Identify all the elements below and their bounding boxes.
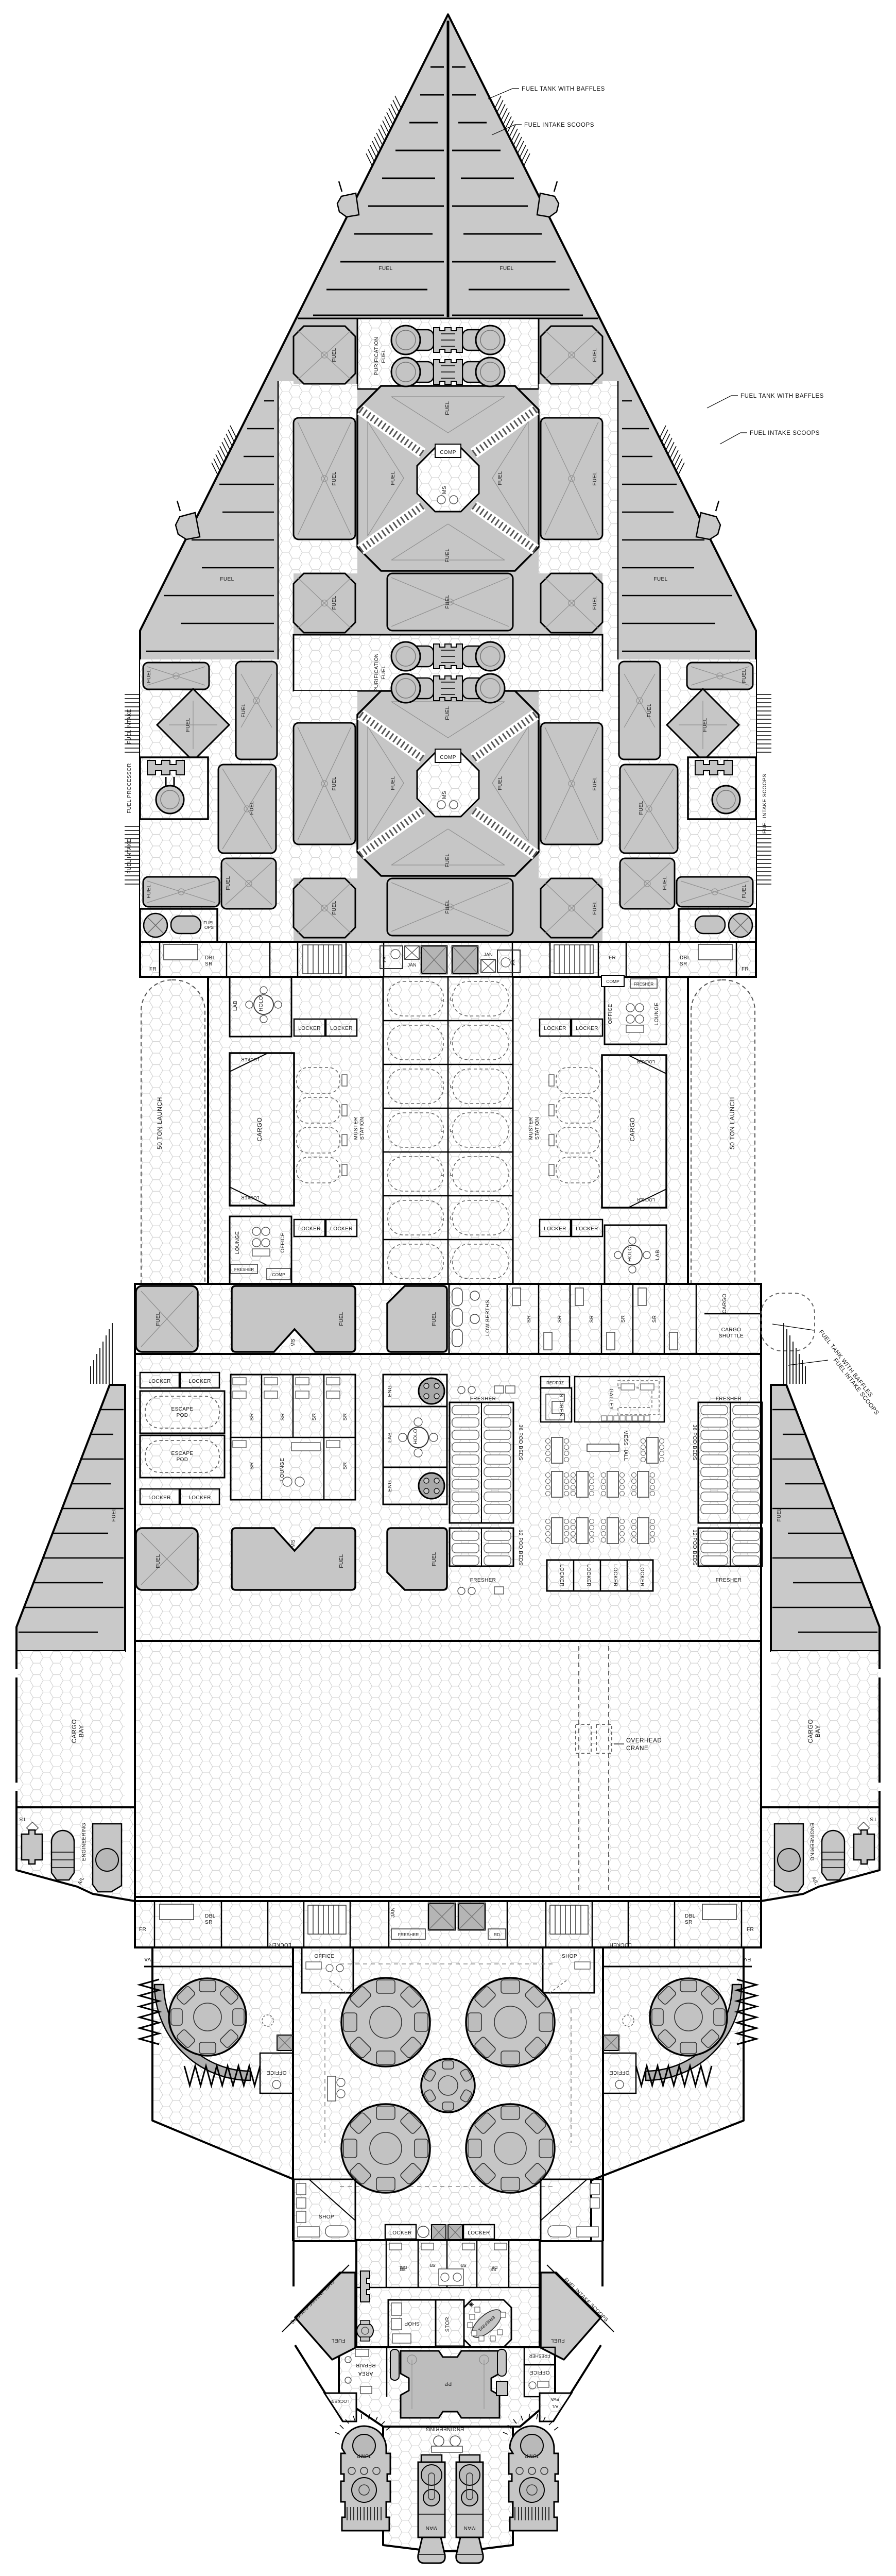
svg-text:FUEL INTAKE SCOOPS: FUEL INTAKE SCOOPS	[524, 122, 594, 128]
svg-text:12 POD BEDS: 12 POD BEDS	[518, 1530, 523, 1566]
svg-text:FUEL: FUEL	[332, 348, 337, 362]
svg-text:POD: POD	[177, 1413, 188, 1418]
svg-text:SHOP: SHOP	[404, 2320, 420, 2326]
svg-text:L: L	[441, 997, 443, 1002]
svg-text:FR: FR	[149, 967, 157, 972]
svg-text:TS: TS	[870, 1816, 877, 1822]
svg-text:SHUTTLE: SHUTTLE	[719, 1333, 744, 1339]
svg-text:SR: SR	[621, 1315, 626, 1323]
svg-text:LOCKER: LOCKER	[330, 1226, 353, 1232]
svg-text:EVA: EVA	[550, 2397, 559, 2402]
svg-text:L: L	[441, 1084, 443, 1089]
svg-text:ENGINEERING: ENGINEERING	[81, 1823, 87, 1861]
svg-text:PURIFICATION: PURIFICATION	[374, 653, 380, 692]
svg-text:L: L	[450, 1216, 453, 1221]
svg-text:ESCAPE: ESCAPE	[171, 1406, 194, 1412]
svg-text:50 TON LAUNCH: 50 TON LAUNCH	[729, 1097, 736, 1149]
svg-text:FUEL: FUEL	[550, 2337, 564, 2343]
svg-text:FUEL: FUEL	[497, 776, 503, 790]
svg-text:COMP: COMP	[440, 450, 456, 455]
svg-text:FUEL INTAKE: FUEL INTAKE	[127, 709, 132, 744]
svg-text:ENG: ENG	[387, 1385, 393, 1397]
svg-text:SR: SR	[312, 1413, 317, 1421]
svg-text:FUEL: FUEL	[332, 901, 337, 914]
svg-text:LOCKER: LOCKER	[468, 2230, 490, 2236]
svg-text:FUEL: FUEL	[445, 548, 451, 562]
svg-text:COMP: COMP	[606, 979, 619, 984]
svg-text:MESS HALL: MESS HALL	[623, 1430, 628, 1461]
svg-text:LOCKER: LOCKER	[242, 1195, 260, 1200]
svg-text:L: L	[441, 1128, 443, 1133]
svg-text:STOR.: STOR.	[445, 2315, 451, 2332]
svg-text:DBL: DBL	[205, 1913, 216, 1919]
svg-text:FUEL: FUEL	[226, 876, 231, 890]
svg-text:FRESHER: FRESHER	[716, 1396, 742, 1402]
svg-text:FUEL: FUEL	[390, 776, 396, 790]
svg-text:LAB: LAB	[233, 1001, 238, 1011]
svg-text:OFFICE: OFFICE	[609, 2070, 629, 2075]
svg-text:FUEL PROCESSOR: FUEL PROCESSOR	[127, 763, 132, 813]
svg-text:MS: MS	[290, 1338, 296, 1347]
svg-text:FUEL: FUEL	[339, 1312, 344, 1326]
svg-text:FUEL: FUEL	[639, 801, 644, 815]
svg-text:CARGO: CARGO	[629, 1117, 636, 1141]
svg-text:FUEL: FUEL	[592, 596, 598, 609]
svg-text:STORES: STORES	[558, 1394, 564, 1416]
svg-text:JAN: JAN	[484, 952, 492, 957]
svg-text:CARGO: CARGO	[71, 1719, 78, 1743]
svg-text:MS: MS	[442, 791, 447, 799]
svg-text:REF/FRZ: REF/FRZ	[546, 1381, 564, 1385]
svg-text:FUEL: FUEL	[592, 348, 598, 362]
svg-text:FUEL: FUEL	[332, 596, 337, 609]
svg-text:L: L	[441, 1172, 443, 1177]
svg-text:DBL: DBL	[680, 955, 691, 961]
svg-text:FR: FR	[742, 967, 749, 972]
svg-text:FUEL TANK WITH BAFFLES: FUEL TANK WITH BAFFLES	[740, 393, 824, 399]
svg-text:FUEL: FUEL	[702, 718, 708, 732]
svg-text:L: L	[450, 1260, 453, 1264]
svg-text:FUEL: FUEL	[432, 1552, 437, 1566]
svg-text:SR: SR	[685, 1920, 693, 1925]
svg-text:FUEL: FUEL	[742, 884, 747, 898]
svg-text:OFFICE: OFFICE	[314, 1954, 334, 1959]
svg-text:BAY: BAY	[78, 1725, 85, 1738]
svg-text:PURIFICATION: PURIFICATION	[374, 337, 380, 376]
svg-text:GALLEY: GALLEY	[608, 1388, 614, 1410]
svg-text:FUEL: FUEL	[592, 471, 598, 485]
svg-text:L: L	[441, 1041, 443, 1045]
svg-text:LOCKER: LOCKER	[330, 1026, 353, 1031]
svg-text:COMP: COMP	[440, 755, 456, 760]
svg-text:SHOP: SHOP	[319, 2214, 334, 2220]
svg-text:36 POD BEDS: 36 POD BEDS	[692, 1425, 697, 1461]
svg-text:L: L	[450, 997, 453, 1002]
svg-text:SR: SR	[249, 1462, 255, 1470]
svg-text:FUEL: FUEL	[777, 1507, 782, 1521]
svg-text:SR: SR	[342, 1413, 348, 1421]
svg-text:CARGO: CARGO	[721, 1327, 742, 1333]
svg-text:LOCKER: LOCKER	[242, 1057, 260, 1062]
svg-text:50 TON LAUNCH: 50 TON LAUNCH	[156, 1097, 163, 1149]
svg-text:FRESHER: FRESHER	[398, 1932, 419, 1937]
svg-text:LOCKER: LOCKER	[637, 1059, 655, 1064]
svg-text:FUEL: FUEL	[220, 577, 234, 582]
svg-text:JAN: JAN	[390, 1907, 396, 1918]
svg-text:FRESHER: FRESHER	[234, 1267, 254, 1272]
svg-text:FUEL: FUEL	[445, 401, 451, 415]
svg-text:LOCKER: LOCKER	[585, 1564, 591, 1587]
svg-text:FUEL: FUEL	[445, 900, 451, 913]
svg-text:CRANE: CRANE	[626, 1745, 648, 1752]
svg-text:FUEL: FUEL	[381, 665, 387, 679]
svg-text:MS: MS	[290, 1539, 296, 1548]
svg-text:LOCKER: LOCKER	[612, 1564, 618, 1587]
svg-text:L: L	[450, 1172, 453, 1177]
svg-text:ENGINEERING: ENGINEERING	[809, 1823, 815, 1861]
svg-text:L: L	[450, 1041, 453, 1045]
svg-text:FUEL TANK WITH BAFFLES: FUEL TANK WITH BAFFLES	[522, 86, 605, 92]
svg-text:FUEL: FUEL	[499, 266, 513, 272]
svg-text:MAN: MAN	[425, 2525, 437, 2531]
svg-text:FRESHER: FRESHER	[634, 982, 653, 987]
svg-text:FUEL: FUEL	[742, 669, 747, 683]
svg-text:LOCKER: LOCKER	[576, 1026, 598, 1031]
svg-text:FUEL: FUEL	[332, 471, 337, 485]
svg-text:36 POD BEDS: 36 POD BEDS	[518, 1425, 523, 1461]
svg-text:LOUNGE: LOUNGE	[654, 1003, 660, 1026]
svg-text:COMP: COMP	[272, 1272, 285, 1277]
svg-text:LAB: LAB	[387, 1432, 393, 1443]
svg-text:OVERHEAD: OVERHEAD	[626, 1738, 662, 1744]
svg-text:FR: FR	[382, 956, 387, 962]
svg-text:FUEL: FUEL	[662, 876, 668, 890]
svg-text:FUEL INTAKE: FUEL INTAKE	[127, 839, 132, 874]
svg-text:LOCKER: LOCKER	[188, 1495, 211, 1501]
svg-text:FRESHER: FRESHER	[529, 2353, 550, 2359]
svg-text:FR: FR	[747, 1927, 754, 1933]
svg-text:STATION: STATION	[535, 1117, 540, 1140]
svg-text:DBL: DBL	[685, 1913, 696, 1919]
svg-text:LOCKER: LOCKER	[639, 1564, 645, 1587]
svg-text:REPAIR: REPAIR	[356, 2362, 376, 2368]
svg-text:LOCKER: LOCKER	[298, 1026, 321, 1031]
svg-text:HOLO: HOLO	[627, 1246, 633, 1262]
svg-text:STATION: STATION	[359, 1117, 365, 1140]
svg-text:MUSTER: MUSTER	[528, 1117, 534, 1140]
svg-text:FUEL: FUEL	[332, 776, 337, 790]
svg-text:FRESHER: FRESHER	[470, 1578, 496, 1583]
svg-text:FR: FR	[511, 959, 516, 965]
svg-text:JAN: JAN	[407, 962, 416, 968]
svg-text:FR: FR	[139, 1927, 146, 1933]
svg-text:CARGO: CARGO	[256, 1117, 263, 1141]
svg-text:SR: SR	[205, 961, 213, 967]
svg-text:FR: FR	[609, 955, 616, 961]
svg-text:FUEL: FUEL	[592, 776, 598, 790]
svg-text:SR: SR	[460, 2263, 467, 2268]
svg-text:L: L	[450, 1084, 453, 1089]
svg-text:FUEL: FUEL	[378, 266, 392, 272]
svg-text:FUEL: FUEL	[146, 884, 152, 898]
svg-text:LOCKER: LOCKER	[188, 1379, 211, 1384]
svg-text:OPS: OPS	[204, 925, 214, 930]
svg-text:SHOP: SHOP	[562, 1954, 577, 1959]
svg-text:FUEL: FUEL	[331, 2337, 345, 2343]
svg-text:FUEL: FUEL	[156, 1554, 161, 1568]
svg-text:OFFICE: OFFICE	[280, 1232, 286, 1252]
svg-text:LOCKER: LOCKER	[544, 1226, 566, 1232]
svg-text:FUEL: FUEL	[241, 703, 247, 717]
svg-text:BAY: BAY	[814, 1725, 821, 1738]
svg-text:TS: TS	[19, 1816, 26, 1822]
svg-text:FUEL: FUEL	[445, 853, 451, 867]
svg-text:FUEL: FUEL	[432, 1312, 437, 1326]
svg-text:FRESHER: FRESHER	[470, 1396, 496, 1402]
svg-text:FUEL: FUEL	[445, 595, 451, 608]
svg-text:ESCAPE: ESCAPE	[171, 1451, 194, 1456]
svg-text:FUEL: FUEL	[390, 471, 396, 485]
svg-text:MAN: MAN	[463, 2525, 475, 2531]
svg-text:LOCKER: LOCKER	[576, 1226, 598, 1232]
svg-text:CARGO: CARGO	[722, 1294, 728, 1314]
svg-text:FUEL: FUEL	[592, 901, 598, 914]
svg-text:AREA: AREA	[358, 2370, 373, 2376]
svg-text:SR: SR	[652, 1315, 658, 1323]
svg-text:LOCKER: LOCKER	[637, 1197, 655, 1202]
svg-text:LOCKER: LOCKER	[559, 1564, 564, 1587]
svg-text:LOCKER: LOCKER	[544, 1026, 566, 1031]
svg-text:A/L: A/L	[552, 2404, 558, 2409]
svg-text:SR: SR	[589, 1315, 595, 1323]
svg-text:LOUNGE: LOUNGE	[280, 1458, 285, 1481]
svg-text:ENG: ENG	[387, 1480, 393, 1492]
svg-text:LOCKER: LOCKER	[332, 2399, 350, 2404]
svg-text:FUEL: FUEL	[185, 718, 191, 732]
svg-text:FUEL: FUEL	[445, 706, 451, 720]
svg-text:LOCKER: LOCKER	[298, 1226, 321, 1232]
svg-text:OFFICE: OFFICE	[266, 2070, 286, 2075]
svg-text:HOLO: HOLO	[259, 996, 264, 1011]
svg-text:PP: PP	[444, 2381, 452, 2386]
svg-text:SR: SR	[557, 1315, 563, 1323]
svg-text:POD: POD	[177, 1457, 188, 1463]
svg-text:FRESHER: FRESHER	[716, 1578, 742, 1583]
svg-text:SR: SR	[342, 1462, 348, 1470]
svg-text:FUEL: FUEL	[497, 471, 503, 485]
svg-text:FUEL: FUEL	[249, 801, 255, 815]
svg-text:FUEL: FUEL	[647, 703, 652, 717]
svg-text:L: L	[450, 1128, 453, 1133]
svg-text:LOCKER: LOCKER	[389, 2230, 412, 2236]
svg-text:FUEL: FUEL	[339, 1554, 344, 1568]
svg-text:FUEL INTAKE SCOOPS: FUEL INTAKE SCOOPS	[750, 430, 820, 436]
svg-text:ENGINEERING: ENGINEERING	[426, 2426, 464, 2432]
svg-text:DBL: DBL	[205, 955, 216, 961]
svg-text:SR: SR	[680, 961, 687, 967]
svg-text:OFFICE: OFFICE	[529, 2369, 549, 2375]
svg-text:L: L	[441, 1216, 443, 1221]
svg-text:SR: SR	[249, 1413, 255, 1421]
svg-text:12 POD BEDS: 12 POD BEDS	[692, 1530, 697, 1566]
svg-text:SR: SR	[526, 1315, 532, 1323]
svg-text:SR: SR	[490, 2267, 496, 2272]
svg-text:JUMP: JUMP	[357, 2453, 372, 2459]
svg-text:FUEL: FUEL	[381, 349, 387, 363]
svg-text:SR: SR	[429, 2263, 436, 2268]
svg-text:JUMP: JUMP	[525, 2453, 540, 2459]
svg-text:LOCKER: LOCKER	[148, 1495, 171, 1501]
svg-text:CARGO: CARGO	[807, 1719, 814, 1743]
svg-text:LOCKER: LOCKER	[148, 1379, 171, 1384]
svg-text:FUEL: FUEL	[653, 577, 667, 582]
svg-text:HOLO: HOLO	[413, 1429, 419, 1444]
svg-text:FUEL: FUEL	[111, 1507, 117, 1521]
svg-text:RD: RD	[494, 1932, 500, 1937]
svg-text:OFFICE: OFFICE	[608, 1004, 613, 1024]
svg-text:SR: SR	[280, 1413, 286, 1421]
svg-text:FUEL: FUEL	[146, 669, 152, 683]
svg-text:FUEL: FUEL	[156, 1312, 161, 1326]
svg-text:MS: MS	[442, 486, 447, 494]
svg-text:LOW BERTHS: LOW BERTHS	[485, 1300, 491, 1336]
svg-text:FUEL INTAKE SCOOPS: FUEL INTAKE SCOOPS	[762, 774, 768, 834]
svg-text:L: L	[441, 1260, 443, 1264]
svg-text:LAB: LAB	[655, 1250, 661, 1260]
svg-text:SR: SR	[205, 1920, 213, 1925]
svg-text:MUSTER: MUSTER	[353, 1117, 359, 1140]
svg-text:LOUNGE: LOUNGE	[235, 1231, 240, 1255]
svg-text:SR: SR	[400, 2267, 406, 2272]
